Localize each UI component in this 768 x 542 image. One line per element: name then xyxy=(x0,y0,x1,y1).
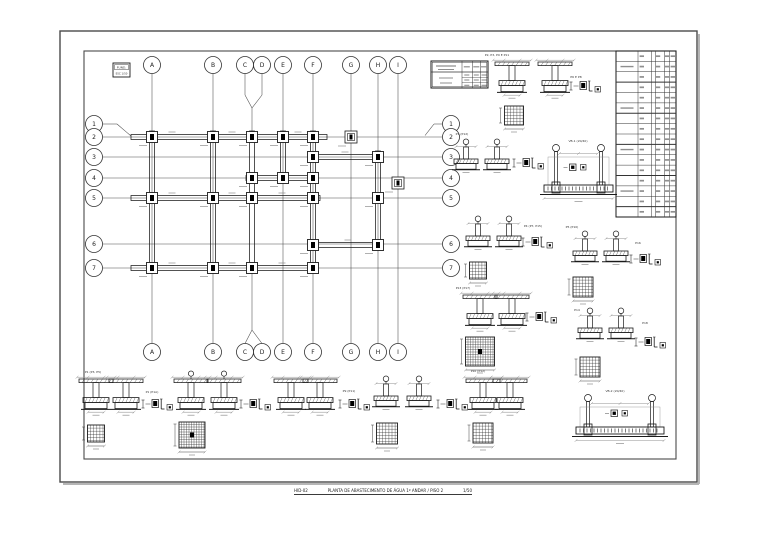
svg-text:P6 E P8: P6 E P8 xyxy=(570,75,581,79)
svg-text:1: 1 xyxy=(449,121,453,128)
caption-drawing-code: HID-02 xyxy=(294,488,308,493)
svg-text:P16: P16 xyxy=(635,241,641,245)
sheet-border xyxy=(60,31,699,484)
svg-text:FUND.: FUND. xyxy=(117,66,126,70)
legend-box: FUND.ESC 1/50 xyxy=(113,63,130,77)
svg-text:P18: P18 xyxy=(642,321,648,325)
sheet-caption: HID-02 PLANTA DE ABASTECIMENTO DE ÁGUA 1… xyxy=(294,488,472,495)
svg-text:VB-1 (20/40): VB-1 (20/40) xyxy=(568,139,587,143)
svg-text:I: I xyxy=(397,62,399,69)
pile-caps xyxy=(139,131,404,277)
svg-text:B: B xyxy=(211,62,215,69)
svg-text:3: 3 xyxy=(449,154,453,161)
svg-text:2: 2 xyxy=(449,134,453,141)
svg-text:P1 (P12): P1 (P12) xyxy=(456,132,469,136)
svg-text:F: F xyxy=(311,62,315,69)
svg-text:I: I xyxy=(397,349,399,356)
pile-schedule-table xyxy=(616,51,676,217)
svg-text:P10 (P12): P10 (P12) xyxy=(471,369,486,373)
detail-labels: P2, P3, P9 E P11P6 E P8P1 (P12)VB-1 (20/… xyxy=(85,53,648,394)
svg-text:H: H xyxy=(376,349,381,356)
svg-text:2: 2 xyxy=(92,134,96,141)
sheet-canvas: FUND.ESC 1/50AABBCCDDEEFFGGHHII112233445… xyxy=(0,0,768,542)
svg-text:P13 (P17): P13 (P17) xyxy=(456,286,471,290)
small-schedule-table xyxy=(431,61,488,88)
svg-text:VB-2 (20/40): VB-2 (20/40) xyxy=(605,389,624,393)
svg-text:G: G xyxy=(349,62,354,69)
strip-footing-details xyxy=(540,145,668,444)
svg-text:E: E xyxy=(281,62,285,69)
svg-text:6: 6 xyxy=(92,241,96,248)
svg-text:5: 5 xyxy=(92,195,96,202)
svg-text:3: 3 xyxy=(92,154,96,161)
svg-text:5: 5 xyxy=(449,195,453,202)
svg-text:P1 (P3, P5): P1 (P3, P5) xyxy=(85,370,101,374)
svg-text:D: D xyxy=(260,62,265,69)
svg-text:7: 7 xyxy=(92,265,96,272)
svg-text:P5 (P10): P5 (P10) xyxy=(566,225,579,229)
svg-text:7: 7 xyxy=(449,265,453,272)
svg-text:4: 4 xyxy=(92,175,96,182)
svg-text:4: 4 xyxy=(449,175,453,182)
caption-scale: 1/50 xyxy=(463,488,472,493)
svg-text:1: 1 xyxy=(92,121,96,128)
svg-text:6: 6 xyxy=(449,241,453,248)
svg-text:G: G xyxy=(349,349,354,356)
svg-text:P9 (P11): P9 (P11) xyxy=(343,389,356,393)
svg-text:ESC 1/50: ESC 1/50 xyxy=(116,72,128,76)
svg-text:P1 (P1A): P1 (P1A) xyxy=(146,390,159,394)
svg-text:P14: P14 xyxy=(574,308,580,312)
pile-detail-elevations xyxy=(76,59,635,415)
svg-text:P4 (P7, P15): P4 (P7, P15) xyxy=(524,224,542,228)
rebar-section-details xyxy=(142,81,666,410)
svg-text:C: C xyxy=(243,349,247,356)
svg-text:B: B xyxy=(211,349,215,356)
svg-text:F: F xyxy=(311,349,315,356)
svg-text:D: D xyxy=(260,349,265,356)
caption-title: PLANTA DE ABASTECIMENTO DE ÁGUA 1º ANDAR… xyxy=(328,488,444,493)
svg-text:C: C xyxy=(243,62,247,69)
structural-grid: AABBCCDDEEFFGGHHII11223344556677 xyxy=(86,57,460,361)
foundation-plan-drawing: FUND.ESC 1/50AABBCCDDEEFFGGHHII112233445… xyxy=(0,0,768,542)
svg-text:E: E xyxy=(281,349,285,356)
svg-text:H: H xyxy=(376,62,381,69)
svg-text:P2, P3, P9 E P11: P2, P3, P9 E P11 xyxy=(485,53,509,57)
